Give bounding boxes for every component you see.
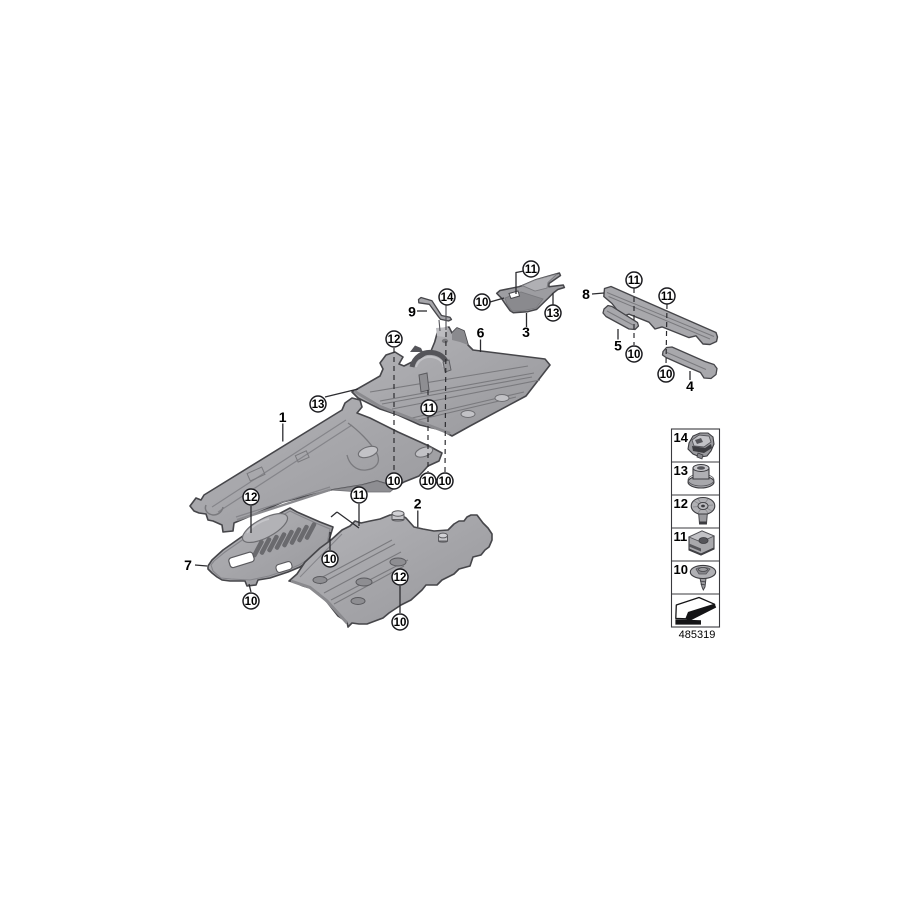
svg-text:6: 6 bbox=[477, 324, 485, 340]
svg-text:12: 12 bbox=[388, 334, 401, 346]
svg-text:10: 10 bbox=[660, 369, 673, 381]
svg-text:10: 10 bbox=[388, 476, 401, 488]
svg-text:11: 11 bbox=[628, 275, 641, 287]
svg-text:7: 7 bbox=[184, 557, 192, 573]
svg-text:3: 3 bbox=[522, 324, 530, 340]
svg-text:10: 10 bbox=[674, 562, 688, 577]
svg-text:485319: 485319 bbox=[679, 629, 716, 641]
svg-text:12: 12 bbox=[674, 496, 688, 511]
svg-text:10: 10 bbox=[628, 349, 641, 361]
svg-text:14: 14 bbox=[441, 292, 454, 304]
svg-text:1: 1 bbox=[279, 409, 287, 425]
svg-text:11: 11 bbox=[661, 291, 674, 303]
svg-text:8: 8 bbox=[582, 286, 590, 302]
svg-text:10: 10 bbox=[394, 617, 407, 629]
svg-text:11: 11 bbox=[525, 264, 538, 276]
svg-text:5: 5 bbox=[614, 338, 622, 354]
svg-text:10: 10 bbox=[245, 596, 258, 608]
svg-text:14: 14 bbox=[674, 430, 689, 445]
svg-text:11: 11 bbox=[423, 403, 436, 415]
svg-text:11: 11 bbox=[674, 529, 688, 544]
svg-text:10: 10 bbox=[439, 476, 452, 488]
svg-text:13: 13 bbox=[674, 463, 688, 478]
svg-text:12: 12 bbox=[394, 572, 407, 584]
svg-text:10: 10 bbox=[476, 297, 489, 309]
svg-text:13: 13 bbox=[312, 399, 325, 411]
svg-text:2: 2 bbox=[414, 496, 422, 512]
svg-text:10: 10 bbox=[422, 476, 435, 488]
svg-text:4: 4 bbox=[686, 378, 694, 394]
svg-text:9: 9 bbox=[408, 304, 416, 320]
svg-text:11: 11 bbox=[353, 490, 366, 502]
svg-text:13: 13 bbox=[547, 308, 560, 320]
svg-text:10: 10 bbox=[324, 554, 337, 566]
svg-text:12: 12 bbox=[245, 492, 258, 504]
